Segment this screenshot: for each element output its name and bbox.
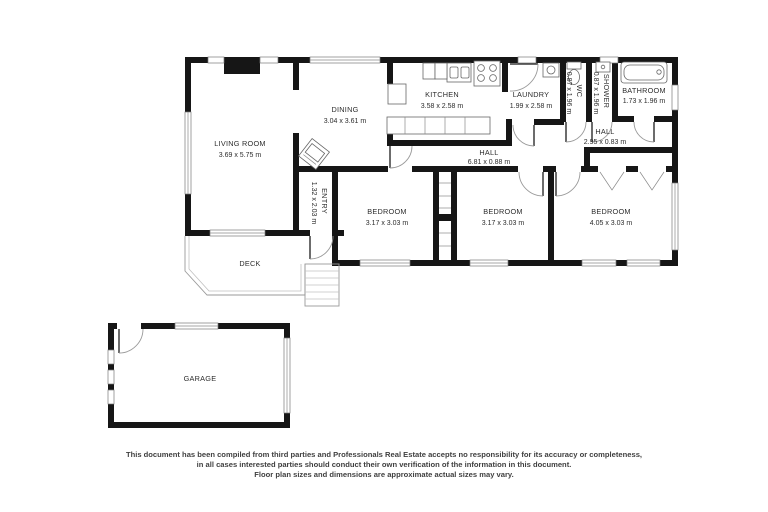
room-dims-laundry: 1.99 x 2.58 m <box>510 103 553 110</box>
room-dims-living: 3.69 x 5.75 m <box>219 152 262 159</box>
room-label-bathroom: BATHROOM <box>622 86 666 95</box>
room-label-deck: DECK <box>239 259 260 268</box>
room-label-bedroom1: BEDROOM <box>367 207 406 216</box>
floor-plan: LIVING ROOM 3.69 x 5.75 m DINING 3.04 x … <box>0 0 768 512</box>
disclaimer-line-1: This document has been compiled from thi… <box>126 450 642 459</box>
room-label-bedroom2: BEDROOM <box>483 207 522 216</box>
room-dims-dining: 3.04 x 3.61 m <box>324 118 367 125</box>
room-label-shower: SHOWER <box>602 74 611 108</box>
bathtub <box>621 62 667 83</box>
room-dims-shower: 0.87 x 1.96 m <box>592 72 599 115</box>
room-dims-hall-rear: 2.95 x 0.83 m <box>584 139 627 146</box>
shower-unit <box>596 62 610 72</box>
room-dims-bedroom3: 4.05 x 3.03 m <box>590 220 633 227</box>
fireplace-block <box>224 57 260 74</box>
disclaimer-line-2: in all cases interested parties should c… <box>197 460 572 469</box>
room-label-garage: GARAGE <box>184 374 217 383</box>
room-dims-bathroom: 1.73 x 1.96 m <box>623 98 666 105</box>
room-dims-bedroom2: 3.17 x 3.03 m <box>482 220 525 227</box>
room-label-laundry: LAUNDRY <box>513 90 550 99</box>
room-label-wc: WC <box>575 85 584 98</box>
room-label-dining: DINING <box>331 105 358 114</box>
room-label-entry: ENTRY <box>320 188 329 214</box>
kitchen-bench <box>387 117 490 134</box>
room-dims-wc: 0.87 x 1.96 m <box>565 72 572 115</box>
room-label-hall-rear: HALL <box>595 127 614 136</box>
room-label-bedroom3: BEDROOM <box>591 207 630 216</box>
room-dims-hall-main: 6.81 x 0.88 m <box>468 159 511 166</box>
room-label-living: LIVING ROOM <box>214 139 265 148</box>
kitchen-sink <box>447 63 471 82</box>
room-label-kitchen: KITCHEN <box>425 90 459 99</box>
room-dims-kitchen: 3.58 x 2.58 m <box>421 103 464 110</box>
stove <box>474 61 500 86</box>
disclaimer-line-3: Floor plan sizes and dimensions are appr… <box>254 470 513 479</box>
laundry-tub <box>543 63 559 77</box>
room-dims-bedroom1: 3.17 x 3.03 m <box>366 220 409 227</box>
room-label-hall-main: HALL <box>479 148 498 157</box>
room-dims-entry: 1.32 x 2.03 m <box>310 182 317 225</box>
